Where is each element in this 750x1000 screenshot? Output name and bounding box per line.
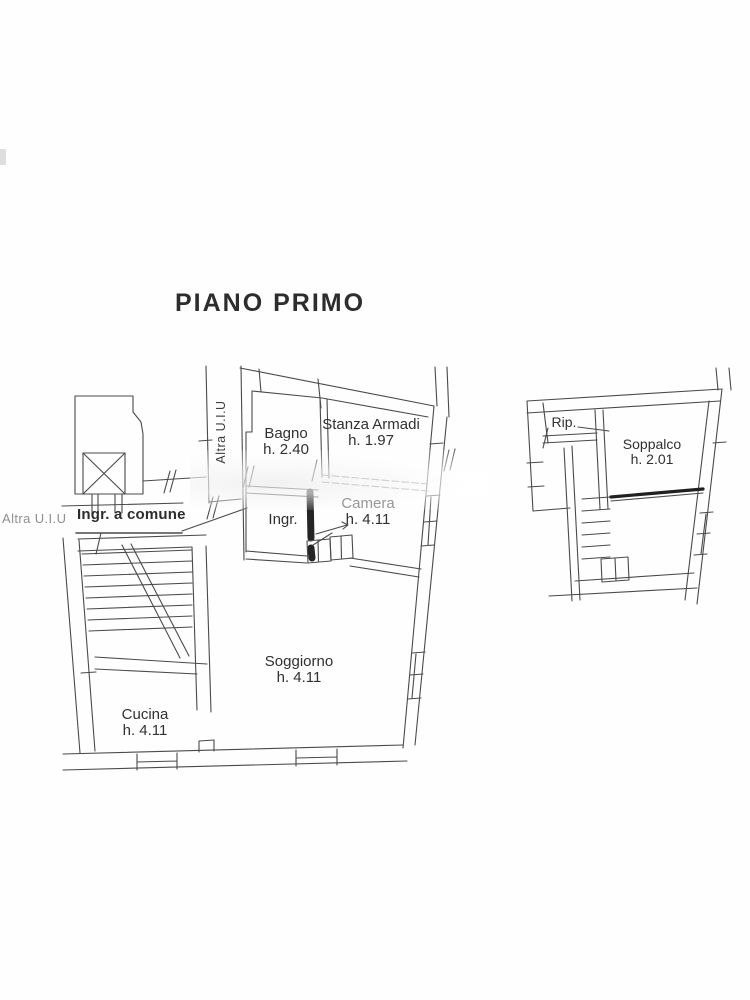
room-name: Soggiorno: [265, 654, 333, 670]
elevator-shaft: [62, 396, 183, 513]
room-label-soggiorno: Soggiorno h. 4.11: [265, 654, 333, 686]
room-name: Ingr.: [268, 512, 297, 528]
room-height: h. 4.11: [341, 512, 394, 528]
room-name: Soppalco: [623, 437, 681, 452]
common-entrance-label: Ingr. a comune: [77, 506, 186, 523]
room-height: h. 2.01: [623, 452, 681, 467]
room-label-soppalco: Soppalco h. 2.01: [623, 437, 681, 467]
room-name: Camera: [341, 496, 394, 512]
room-label-ripostiglio: Rip.: [552, 415, 577, 430]
room-name: Stanza Armadi: [322, 417, 420, 433]
room-height: h. 4.11: [265, 670, 333, 686]
corridor-vertical-label: Altra U.I.U: [214, 400, 228, 463]
room-name: Bagno: [263, 426, 309, 442]
room-label-cucina: Cucina h. 4.11: [122, 707, 169, 739]
scanned-floor-plan-page: PIANO PRIMO Altra U.I.U: [0, 0, 750, 1000]
room-height: h. 1.97: [322, 433, 420, 449]
room-label-camera: Camera h. 4.11: [341, 496, 394, 528]
annex-staircase: [582, 497, 629, 582]
room-height: h. 4.11: [122, 723, 169, 739]
room-height: h. 2.40: [263, 442, 309, 458]
soppalco-edge: [611, 489, 703, 501]
room-label-stanza-armadi: Stanza Armadi h. 1.97: [322, 417, 420, 449]
room-label-bagno: Bagno h. 2.40: [263, 426, 309, 458]
room-label-ingresso: Ingr.: [268, 512, 297, 528]
room-name: Cucina: [122, 707, 169, 723]
room-name: Rip.: [552, 415, 577, 430]
windows: [137, 443, 443, 770]
common-staircase: [82, 544, 192, 658]
